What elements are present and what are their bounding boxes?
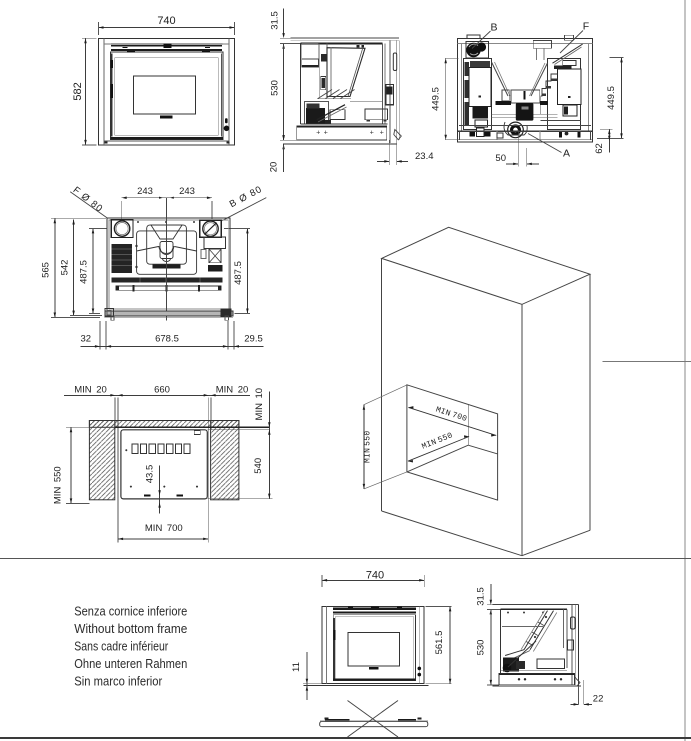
svg-text:MIN 550: MIN 550	[364, 431, 373, 464]
svg-text:32: 32	[81, 334, 92, 345]
svg-text:23.4: 23.4	[415, 151, 434, 162]
svg-text:F: F	[583, 21, 589, 33]
svg-text:31.5: 31.5	[270, 11, 281, 30]
svg-text:Sans cadre inférieur: Sans cadre inférieur	[74, 639, 169, 654]
svg-text:530: 530	[270, 80, 281, 96]
svg-text:MIN 550: MIN 550	[53, 466, 64, 504]
svg-text:20: 20	[269, 162, 280, 173]
svg-text:487.5: 487.5	[79, 260, 90, 284]
svg-text:565: 565	[41, 262, 52, 278]
svg-text:MIN 20: MIN 20	[216, 385, 249, 396]
svg-text:243: 243	[179, 186, 195, 197]
svg-text:660: 660	[154, 385, 170, 396]
svg-text:740: 740	[366, 570, 384, 582]
svg-text:530: 530	[476, 640, 487, 656]
svg-text:449.5: 449.5	[431, 87, 442, 111]
svg-text:740: 740	[157, 15, 175, 27]
svg-text:A: A	[563, 148, 570, 160]
svg-text:678.5: 678.5	[155, 334, 179, 345]
svg-text:50: 50	[495, 153, 506, 164]
svg-text:MIN 10: MIN 10	[254, 388, 265, 421]
svg-text:31.5: 31.5	[476, 587, 487, 606]
svg-text:561.5: 561.5	[434, 631, 445, 655]
svg-text:487.5: 487.5	[233, 261, 244, 285]
svg-text:243: 243	[137, 186, 153, 197]
svg-text:62: 62	[594, 143, 605, 154]
svg-text:11: 11	[291, 662, 302, 672]
svg-text:43.5: 43.5	[145, 465, 156, 484]
svg-text:B: B	[490, 22, 497, 34]
svg-text:542: 542	[60, 260, 71, 276]
svg-text:582: 582	[72, 82, 84, 100]
svg-text:449.5: 449.5	[606, 86, 617, 110]
svg-text:Without bottom frame: Without bottom frame	[74, 621, 187, 636]
svg-text:540: 540	[253, 458, 264, 474]
svg-text:Ohne unteren Rahmen: Ohne unteren Rahmen	[74, 656, 187, 671]
svg-text:22: 22	[593, 694, 604, 705]
svg-text:29.5: 29.5	[244, 334, 263, 345]
svg-text:Sin marco inferior: Sin marco inferior	[74, 674, 163, 689]
svg-text:MIN 700: MIN 700	[145, 523, 183, 534]
svg-text:MIN 20: MIN 20	[74, 385, 107, 396]
svg-text:Senza cornice inferiore: Senza cornice inferiore	[74, 604, 187, 619]
